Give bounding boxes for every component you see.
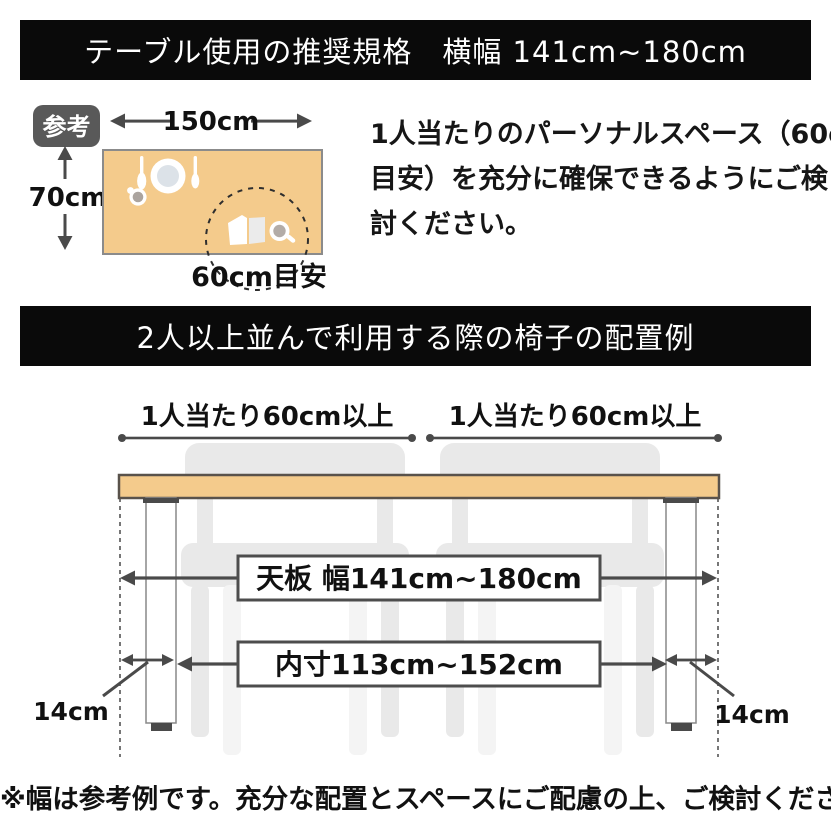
table-leg-left: [143, 498, 179, 731]
depth-dimension-label: 70cm: [29, 183, 108, 213]
table-leg-right: [663, 498, 699, 731]
per-person-label-left: 1人当たり60cm以上: [141, 402, 394, 432]
note-line-1: 1人当たりのパーソナルスペース（60cm: [370, 112, 822, 157]
personal-space-note: 1人当たりのパーソナルスペース（60cm 目安）を充分に確保できるようにご検 討…: [370, 112, 822, 247]
note-line-2: 目安）を充分に確保できるようにご検: [370, 157, 822, 202]
leg-inset-label-left: 14cm: [33, 697, 109, 726]
chair-back-post: [377, 491, 393, 547]
reference-badge-label: 参考: [43, 113, 91, 141]
chair-back-post: [197, 491, 213, 547]
inner-width-label: 内寸113cm~152cm: [275, 648, 563, 681]
footer-note: ※幅は参考例です。充分な配置とスペースにご配慮の上、ご検討ください。: [0, 777, 831, 816]
section2-banner: 2人以上並んで利用する際の椅子の配置例: [20, 306, 811, 366]
chair-leg: [604, 585, 622, 755]
per-person-dimension-right: [426, 434, 722, 442]
section2-title: 2人以上並んで利用する際の椅子の配置例: [136, 315, 694, 357]
per-person-label-right: 1人当たり60cm以上: [449, 402, 702, 432]
tabletop-width-label: 天板 幅141cm~180cm: [256, 562, 582, 595]
reference-diagram: 150cm 参考 70cm: [0, 95, 360, 300]
chair-leg: [636, 585, 654, 737]
chair-placement-diagram: 1人当たり60cm以上 1人当たり60cm以上 天板 幅141cm~180cm …: [0, 375, 831, 770]
note-line-3: 討ください。: [370, 202, 822, 247]
chair-back-post: [632, 491, 648, 547]
tabletop: [119, 475, 719, 498]
chair-leg: [191, 585, 209, 737]
leg-inset-label-right: 14cm: [714, 700, 790, 729]
header-title: テーブル使用の推奨規格 横幅 141cm~180cm: [84, 29, 747, 71]
plate-icon: [151, 159, 186, 194]
personal-space-label: 60cm目安: [191, 262, 327, 293]
width-dimension-label: 150cm: [163, 107, 260, 137]
header-banner: テーブル使用の推奨規格 横幅 141cm~180cm: [20, 20, 811, 80]
per-person-dimension-left: [118, 434, 416, 442]
chair-back-post: [452, 491, 468, 547]
